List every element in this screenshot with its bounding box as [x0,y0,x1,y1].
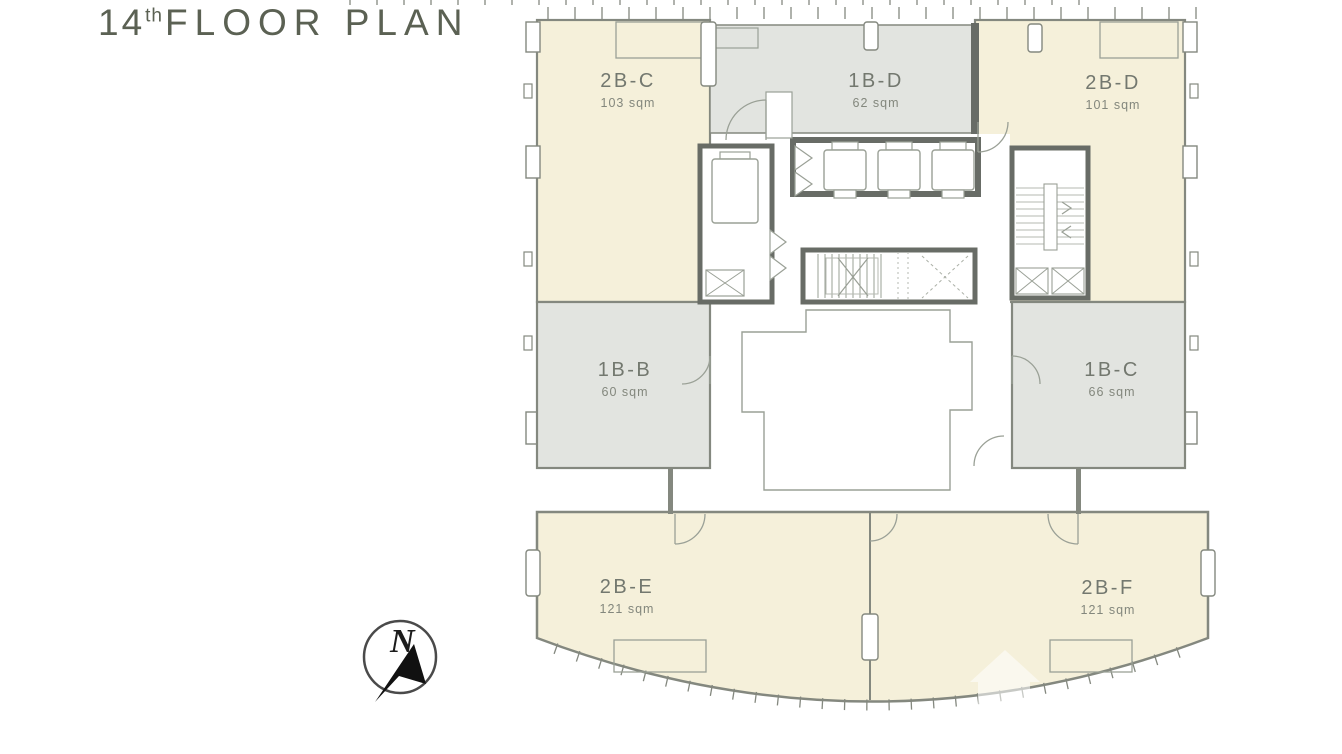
bottom-units-outline [526,512,1215,710]
elevator-car [932,142,974,198]
facade-fin [526,146,540,178]
facade-fin [524,336,532,350]
title-ordinal: th [145,6,163,27]
north-compass: N [364,621,436,702]
connector-wall [1076,468,1081,514]
column [1201,550,1215,596]
page-title: 14thFLOOR PLAN [98,2,469,44]
central-stair [803,250,975,302]
facade-fin [1190,336,1198,350]
title-text: FLOOR PLAN [165,2,469,43]
shaft-x-box [706,270,744,296]
fire-stair-shaft [1012,148,1088,298]
facade-fin [524,84,532,98]
service-elevator-shaft [700,146,786,302]
column [526,550,540,596]
lift-lobby [742,310,972,490]
facade-fin [1190,84,1198,98]
facade-fin [1183,146,1197,178]
facade-fin [526,22,540,52]
column [864,22,878,50]
elevator-car [878,142,920,198]
floor-plan-drawing: N [0,0,1342,754]
elevator-bank [793,140,978,198]
column [701,22,716,86]
column [862,614,878,660]
top-wall-ticks [548,7,1196,19]
elevator-car [824,142,866,198]
facade-fin [1190,252,1198,266]
entry-corridor [766,92,792,138]
title-floor-number: 14 [98,2,145,43]
facade-fin [524,252,532,266]
column [1028,24,1042,52]
connector-wall [668,468,673,514]
facade-fin [1183,22,1197,52]
